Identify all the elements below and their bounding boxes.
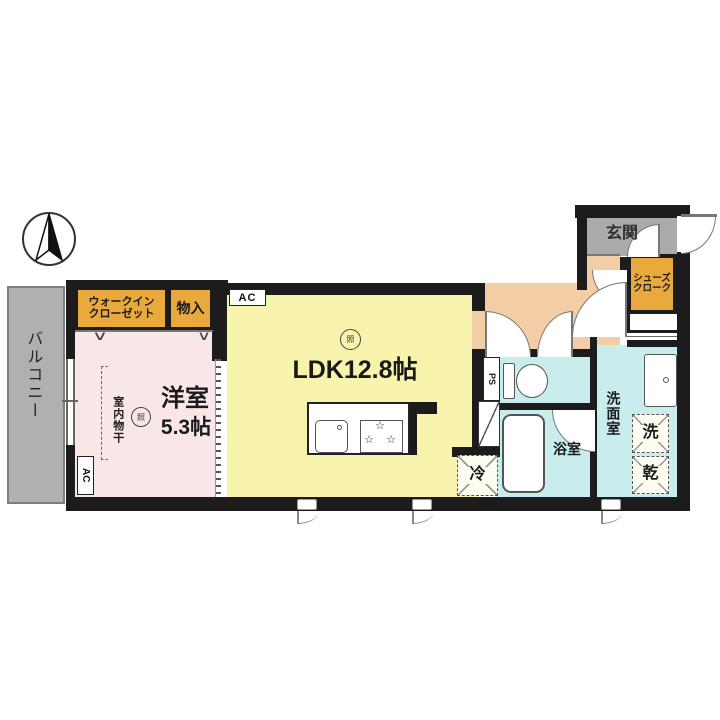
wall-storage-ldk: [212, 280, 227, 361]
ldk-room: [227, 295, 477, 497]
bathtub: [502, 414, 545, 493]
kitchen-faucet: [337, 425, 342, 430]
indoor-drying-rail: [101, 366, 108, 460]
front-door-arc: [681, 216, 716, 254]
closet-door-mark-left: ∨: [80, 328, 121, 344]
wall-hall-left-top: [472, 283, 485, 311]
vent-cap-3: [601, 499, 621, 510]
shoe-cloak-label: シューズクローク: [630, 262, 674, 306]
ac-mark-ldk: AC: [229, 289, 266, 306]
balcony-window: [66, 359, 75, 445]
burner-3: ☆: [383, 434, 399, 448]
entrance-label: 玄関: [592, 222, 652, 246]
toilet-tank: [503, 363, 515, 399]
front-door-leaf: [681, 214, 717, 217]
entrance-step-line: [587, 254, 620, 256]
light-symbol-ldk: 照: [340, 329, 361, 350]
fridge-label: 冷: [462, 461, 493, 490]
wall-top-right: [575, 205, 690, 218]
washroom-window: [627, 330, 677, 343]
washbasin: [644, 354, 677, 407]
walk-in-closet-label: ウォークインクローゼット: [78, 292, 165, 325]
vent-cap-2: [412, 499, 432, 510]
wall-bottom: [66, 497, 690, 511]
pipe-space-label: PS: [485, 360, 498, 398]
wall-toilet-bath: [497, 403, 590, 410]
ldk-door-leaf: [485, 311, 487, 357]
vent-flap-3: [601, 511, 623, 524]
burner-1: ☆: [372, 420, 388, 434]
ac-mark-western: AC: [77, 456, 94, 495]
vent-cap-1: [297, 499, 317, 510]
kitchen-sink: [315, 420, 348, 453]
wall-left-upper: [66, 280, 75, 361]
burner-2: ☆: [361, 434, 377, 448]
bath-label: 浴室: [543, 438, 591, 460]
wall-toilet-top-b: [573, 349, 590, 357]
washroom-label: 洗面室: [603, 380, 623, 446]
vent-flap-1: [297, 511, 319, 524]
shaft-void: [478, 401, 500, 447]
vent-flap-2: [412, 511, 434, 524]
western-room-label: 洋室: [148, 385, 222, 413]
storage-label: 物入: [168, 292, 213, 325]
entrance-inner-door-leaf: [658, 224, 660, 257]
wall-right-outer: [677, 250, 690, 511]
toilet-bowl: [516, 364, 548, 398]
ldk-label: LDK12.8帖: [262, 354, 448, 386]
washbasin-faucet: [663, 377, 669, 383]
indoor-drying-label: 室内物干: [109, 378, 125, 462]
dryer-label: 乾: [638, 461, 663, 488]
washroom-door-leaf: [625, 282, 627, 337]
balcony-window-tick: [62, 400, 78, 402]
washer-label: 洗: [638, 420, 663, 447]
compass-north-icon: [20, 210, 78, 268]
floor-plan: バルコニー ウォークインクローゼット 物入 ∨ ∨ シューズクロー: [0, 0, 720, 720]
balcony-label: バルコニー: [20, 305, 44, 445]
western-room-size: 5.3帖: [150, 415, 222, 441]
closet-door-mark-right: ∨: [189, 328, 219, 344]
